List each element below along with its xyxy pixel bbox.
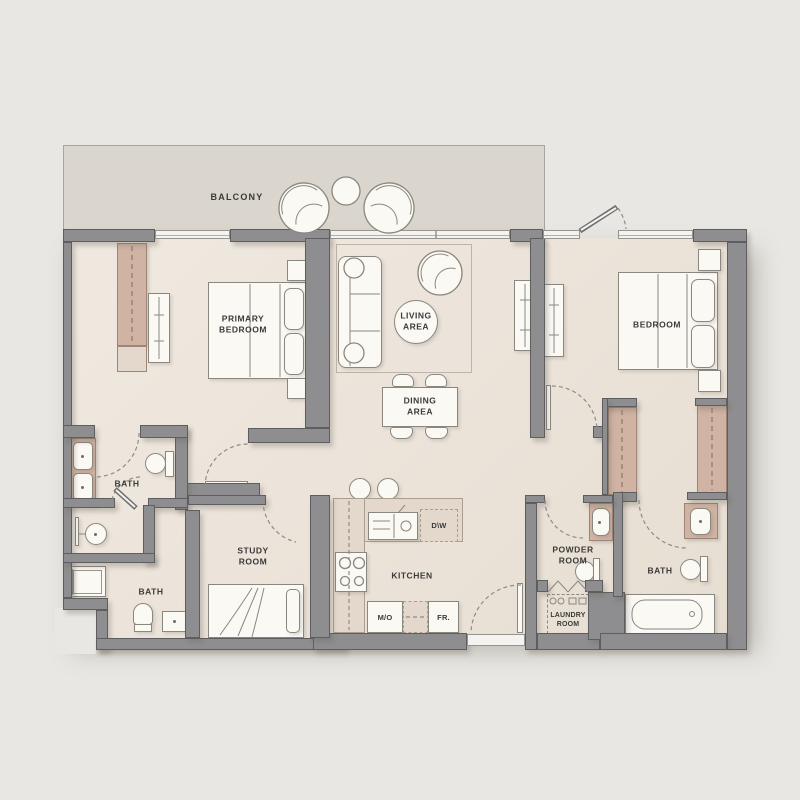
console-primary xyxy=(148,293,170,363)
room-label-balcony: BALCONY xyxy=(211,191,264,203)
dishwasher-label: D\W xyxy=(431,521,446,530)
dining-chair-2 xyxy=(425,374,447,387)
wall-segment xyxy=(687,492,727,500)
wall-segment xyxy=(63,498,115,508)
wall-segment xyxy=(600,633,727,650)
kitchen-sink xyxy=(368,512,418,540)
dishwasher: D\W xyxy=(420,509,458,542)
exterior-notch xyxy=(55,608,96,654)
wall-segment xyxy=(693,229,747,242)
sofa xyxy=(338,256,382,368)
wall-segment xyxy=(63,425,95,438)
bath-right-toilet-tank xyxy=(700,556,708,582)
fridge-label: FR. xyxy=(437,613,450,622)
door-leaf-bedroom2 xyxy=(546,385,551,430)
room-label-kitchen: KITCHEN xyxy=(391,570,432,581)
door-leaf-balcony-bedroom2 xyxy=(580,207,617,231)
basin-dot xyxy=(94,533,97,536)
lower-toilet-bowl xyxy=(133,603,153,625)
room-label-bath-ensuite: BATH xyxy=(115,478,140,489)
door-leaf-entry xyxy=(517,583,523,633)
dining-chair-1 xyxy=(392,374,414,387)
nightstand-bedroom2-2 xyxy=(698,370,721,392)
wall-segment xyxy=(583,495,613,503)
wall-segment xyxy=(96,638,346,650)
nightstand-bedroom2-1 xyxy=(698,249,721,271)
wall-segment xyxy=(305,238,330,428)
pillow-study xyxy=(286,589,300,633)
door-arc xyxy=(618,208,626,229)
basin-dot xyxy=(81,455,84,458)
ensuite-toilet-bowl xyxy=(145,453,166,474)
wall-segment xyxy=(188,495,266,505)
dining-chair-3 xyxy=(390,427,413,439)
window xyxy=(330,230,510,239)
console-bedroom2 xyxy=(544,284,564,357)
powder-sink-basin xyxy=(592,508,610,536)
grab-bar-1 xyxy=(75,517,79,546)
wall-segment xyxy=(525,495,545,503)
wall-segment xyxy=(248,428,330,443)
pillow-primary-2 xyxy=(284,333,304,375)
wall-segment xyxy=(63,242,72,598)
shower-tray-inner xyxy=(73,570,102,594)
wall-segment xyxy=(695,398,727,406)
dining-chair-4 xyxy=(425,427,448,439)
ensuite-toilet-tank xyxy=(165,451,174,477)
lower-toilet-tank xyxy=(134,624,152,632)
bar-stool-1 xyxy=(349,478,371,500)
wall-segment xyxy=(537,580,548,592)
wall-segment xyxy=(602,398,608,495)
wardrobe-primary-lower xyxy=(117,346,147,372)
wall-segment xyxy=(63,229,155,242)
pillow-primary-1 xyxy=(284,288,304,330)
kitchen-cabinet xyxy=(403,601,428,633)
room-label-primary-bedroom: PRIMARY BEDROOM xyxy=(219,314,267,337)
wall-segment xyxy=(727,242,747,650)
wardrobe-right-closet xyxy=(697,405,727,493)
room-label-powder-room: POWDER ROOM xyxy=(552,545,593,568)
pillow-bedroom2-2 xyxy=(691,325,715,368)
room-label-study-room: STUDY ROOM xyxy=(237,546,268,569)
basin-dot xyxy=(81,486,84,489)
wall-segment xyxy=(613,492,623,597)
microwave: M/O xyxy=(367,601,403,633)
fridge: FR. xyxy=(428,601,459,633)
room-label-dining-area: DINING AREA xyxy=(404,396,437,419)
bar-stool-2 xyxy=(377,478,399,500)
wall-segment xyxy=(313,633,467,650)
room-label-living-area: LIVING AREA xyxy=(400,311,431,334)
floor-plan: D\W M/O FR. xyxy=(0,0,800,800)
wardrobe-left-closet xyxy=(608,407,637,495)
wall-segment xyxy=(525,503,537,650)
window xyxy=(543,230,580,239)
room-label-laundry-room: LAUNDRY ROOM xyxy=(550,611,585,629)
microwave-label: M/O xyxy=(378,613,393,622)
wall-segment xyxy=(185,510,200,638)
window xyxy=(155,230,230,239)
wall-segment xyxy=(63,598,108,610)
bath-right-toilet-bowl xyxy=(680,559,701,580)
basin-dot xyxy=(173,620,176,623)
wall-segment xyxy=(585,580,603,592)
window xyxy=(618,230,693,239)
entry-threshold xyxy=(467,634,525,646)
bathtub xyxy=(625,594,715,636)
wall-segment xyxy=(140,425,188,438)
balcony-area xyxy=(63,145,545,235)
wall-segment xyxy=(63,553,155,563)
room-label-bath-lower: BATH xyxy=(139,586,164,597)
wardrobe-primary xyxy=(117,243,147,346)
room-label-bath-right: BATH xyxy=(648,565,673,576)
stove xyxy=(335,552,367,592)
wall-segment xyxy=(310,495,330,638)
pillow-bedroom2-1 xyxy=(691,279,715,322)
basin-dot xyxy=(598,521,601,524)
basin-dot xyxy=(699,520,702,523)
room-label-bedroom: BEDROOM xyxy=(633,319,681,330)
wall-segment xyxy=(530,238,545,438)
